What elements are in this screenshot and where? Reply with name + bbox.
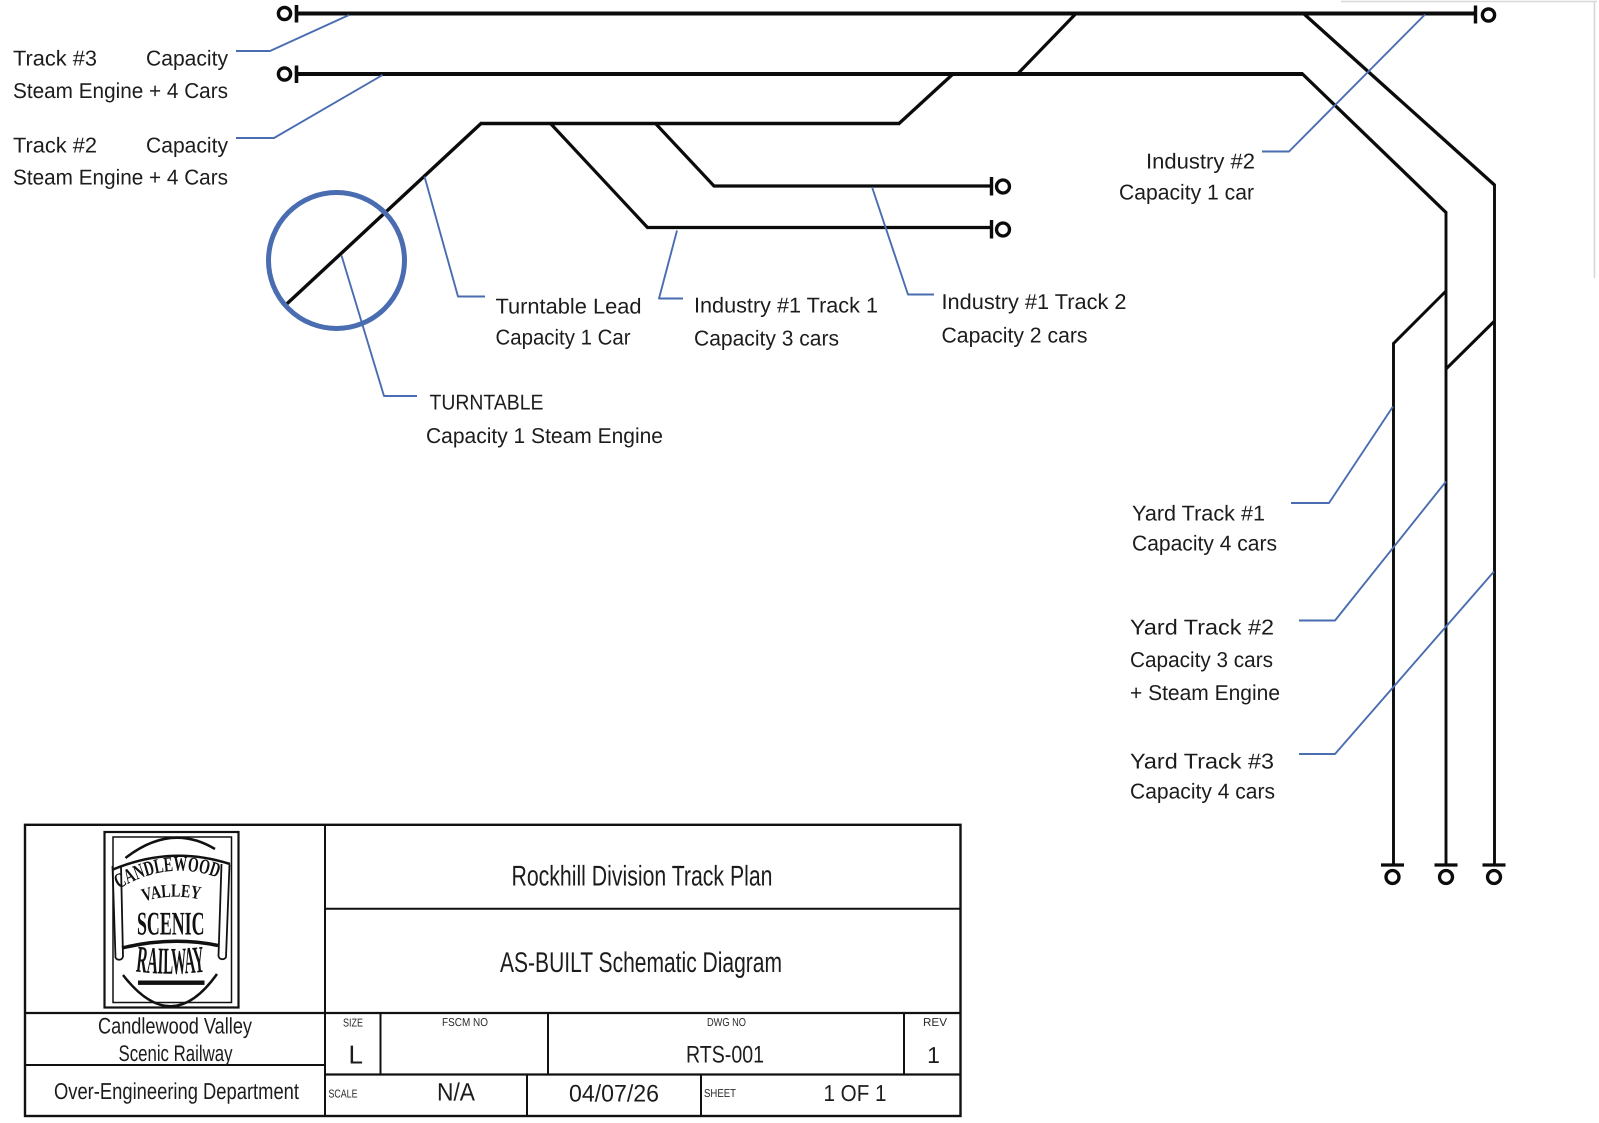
svg-text:DWG NO: DWG NO xyxy=(707,1017,746,1029)
svg-text:Yard Track #3: Yard Track #3 xyxy=(1130,750,1274,774)
svg-text:Capacity: Capacity xyxy=(146,134,228,158)
svg-text:1: 1 xyxy=(927,1042,940,1068)
svg-text:RTS-001: RTS-001 xyxy=(686,1042,764,1069)
svg-text:SIZE: SIZE xyxy=(343,1018,363,1030)
svg-text:Capacity 1 Car: Capacity 1 Car xyxy=(496,326,631,350)
svg-text:Steam Engine + 4 Cars: Steam Engine + 4 Cars xyxy=(13,166,228,190)
svg-text:SHEET: SHEET xyxy=(704,1088,736,1100)
svg-text:Steam Engine + 4 Cars: Steam Engine + 4 Cars xyxy=(13,79,228,103)
svg-text:Industry #1 Track 2: Industry #1 Track 2 xyxy=(942,290,1127,314)
svg-text:Capacity 2 cars: Capacity 2 cars xyxy=(942,324,1088,348)
svg-text:Capacity 4 cars: Capacity 4 cars xyxy=(1132,532,1277,556)
svg-text:SCENIC: SCENIC xyxy=(137,907,205,943)
svg-text:Track #3: Track #3 xyxy=(13,47,97,71)
svg-text:RAILWAY: RAILWAY xyxy=(135,939,207,983)
svg-text:Rockhill Division Track Plan: Rockhill Division Track Plan xyxy=(512,861,773,893)
svg-text:REV: REV xyxy=(923,1017,947,1029)
svg-text:Scenic Railway: Scenic Railway xyxy=(119,1041,234,1066)
svg-text:1 OF 1: 1 OF 1 xyxy=(824,1080,887,1106)
svg-text:Capacity 4 cars: Capacity 4 cars xyxy=(1130,780,1275,804)
svg-text:FSCM NO: FSCM NO xyxy=(442,1017,488,1029)
svg-text:+ Steam Engine: + Steam Engine xyxy=(1130,681,1280,705)
svg-text:Track #2: Track #2 xyxy=(13,134,97,158)
svg-text:N/A: N/A xyxy=(437,1079,475,1107)
svg-text:AS-BUILT Schematic Diagram: AS-BUILT Schematic Diagram xyxy=(500,947,782,979)
svg-text:L: L xyxy=(349,1040,363,1070)
svg-text:04/07/26: 04/07/26 xyxy=(569,1081,659,1108)
svg-text:Industry #1 Track 1: Industry #1 Track 1 xyxy=(694,294,878,318)
svg-text:Capacity 3 cars: Capacity 3 cars xyxy=(1130,648,1273,672)
svg-text:Yard Track #2: Yard Track #2 xyxy=(1130,616,1274,640)
svg-text:TURNTABLE: TURNTABLE xyxy=(430,391,544,415)
svg-text:Turntable Lead: Turntable Lead xyxy=(496,295,642,319)
svg-text:Capacity 1 Steam Engine: Capacity 1 Steam Engine xyxy=(426,424,663,448)
svg-text:Over-Engineering Department: Over-Engineering Department xyxy=(54,1078,299,1104)
svg-text:SCALE: SCALE xyxy=(329,1089,358,1101)
svg-text:Capacity 1 car: Capacity 1 car xyxy=(1119,181,1254,205)
svg-text:Capacity 3 cars: Capacity 3 cars xyxy=(694,327,839,351)
svg-text:Capacity: Capacity xyxy=(146,47,228,71)
svg-text:Industry #2: Industry #2 xyxy=(1146,150,1255,174)
svg-text:Candlewood Valley: Candlewood Valley xyxy=(98,1014,253,1039)
svg-text:Yard Track #1: Yard Track #1 xyxy=(1132,502,1265,526)
